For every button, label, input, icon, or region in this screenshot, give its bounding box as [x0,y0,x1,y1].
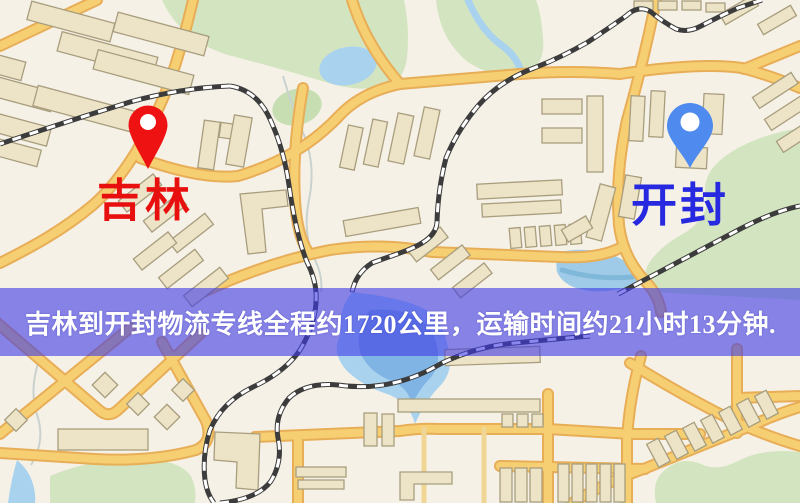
route-info-banner: 吉林到开封物流专线全程约1720公里，运输时间约21小时13分钟. [0,288,800,356]
pin-hole [140,114,156,130]
map-view: 吉林 开封 吉林到开封物流专线全程约1720公里，运输时间约21小时13分钟. [0,0,800,503]
map-canvas[interactable]: 吉林 开封 [0,0,800,503]
pin-hole [681,113,700,132]
destination-label: 开封 [631,180,729,231]
origin-label: 吉林 [97,176,193,226]
route-info-text: 吉林到开封物流专线全程约1720公里，运输时间约21小时13分钟. [25,304,776,341]
